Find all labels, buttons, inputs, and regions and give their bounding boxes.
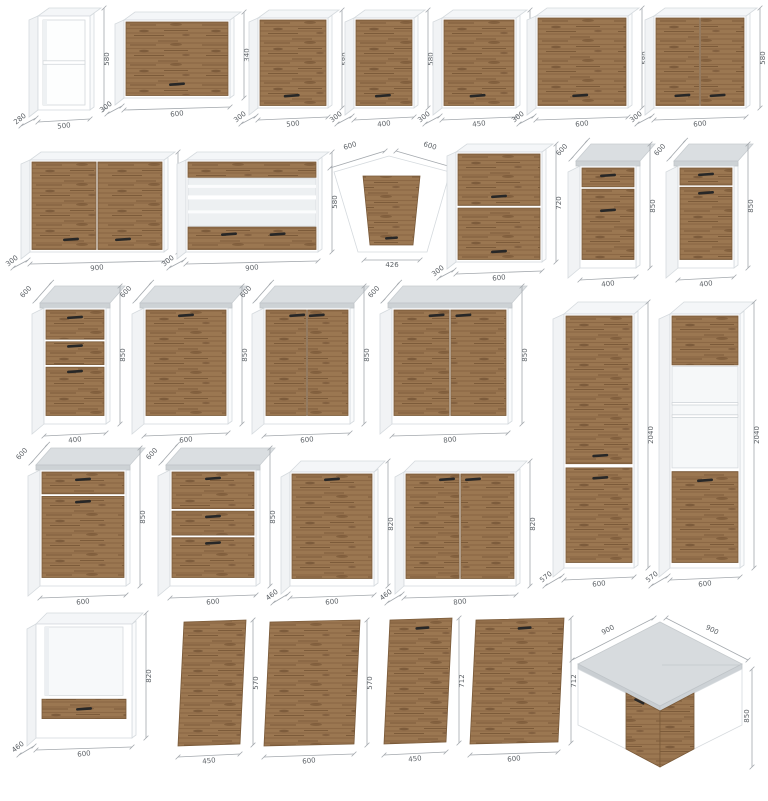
wood-front [672,472,738,563]
wood-front [32,162,96,250]
wood-front [394,310,449,416]
base-cabinet-2door-800-drawing [356,278,548,464]
wood-front [42,472,124,494]
base-cabinet-drawer-door-400-b-drawing [642,136,768,308]
catalog-canvas: 5005802806003403005005803004005803004505… [0,0,768,768]
wood-front [46,367,104,415]
wood-front [188,162,316,177]
wood-front [356,20,412,106]
wood-front [680,168,732,185]
wall-cabinet-2door-600: 600580300 [618,0,768,148]
wood-front [42,496,124,577]
wood-front [266,310,306,416]
wood-front [308,310,348,416]
wood-front [451,310,506,416]
wood-front [566,316,632,464]
wall-cabinet-2door-600-drawing [618,0,768,148]
wood-front [566,468,632,563]
wood-front [582,189,634,259]
wood-front [672,316,738,365]
tall-oven-cabinet-600-drawing [634,284,768,608]
base-cabinet-drawer-door-400-b: 400850600 [642,136,768,308]
wood-front [582,168,634,187]
wood-front [656,18,699,106]
tall-oven-cabinet-600: 6002040570 [634,284,768,608]
corner-base-cabinet-900-drawing [542,586,768,801]
wood-front [292,474,372,579]
wood-front [680,187,732,259]
corner-base-cabinet-900: 900900850 [542,586,768,801]
wood-front [461,474,514,579]
wood-front [46,310,104,339]
wood-front [146,310,226,416]
wood-front [538,18,626,106]
wood-front [188,227,316,249]
base-cabinet-2door-800: 800850600 [356,278,548,464]
wood-front [172,511,254,535]
wood-front [701,18,744,106]
wood-front [406,474,459,579]
wood-front [260,20,326,106]
